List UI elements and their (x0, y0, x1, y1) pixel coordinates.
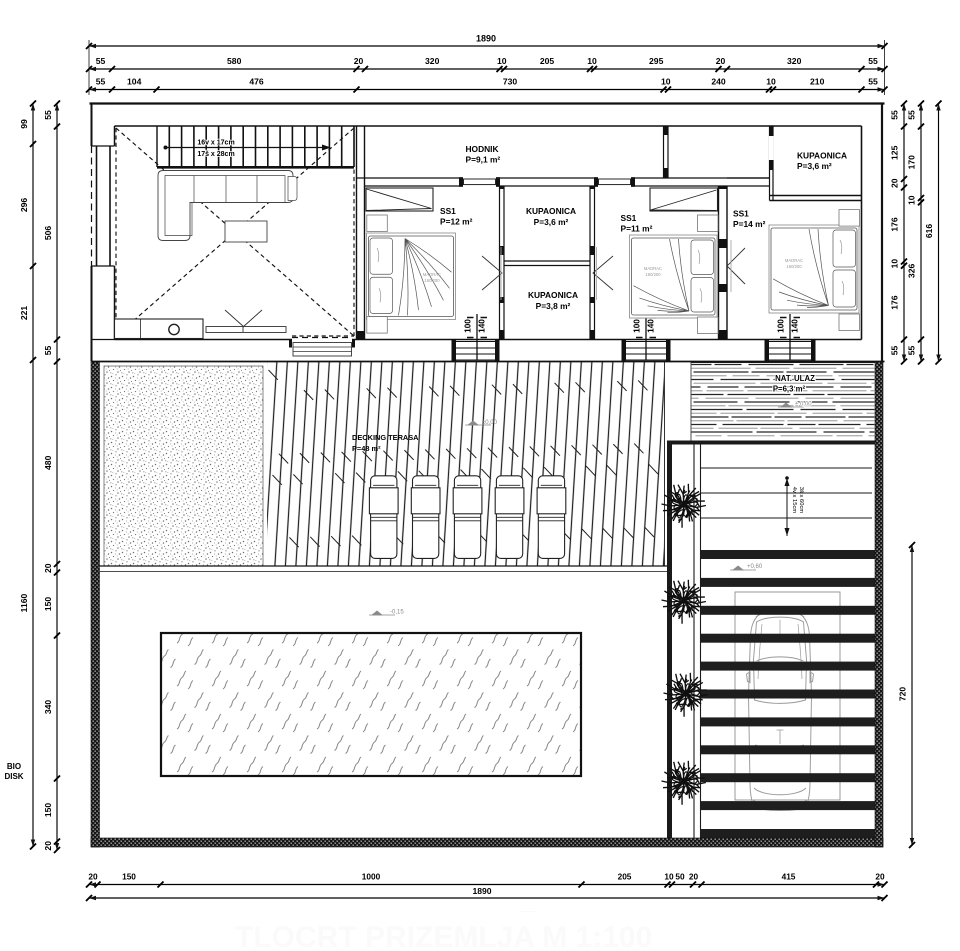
svg-text:10: 10 (907, 195, 917, 205)
svg-text:10: 10 (766, 77, 776, 87)
svg-text:140: 140 (477, 319, 487, 333)
svg-text:50: 50 (675, 872, 685, 882)
svg-text:55: 55 (890, 110, 900, 120)
svg-text:506: 506 (43, 226, 53, 241)
svg-text:BIO: BIO (7, 762, 21, 771)
svg-text:20: 20 (43, 841, 53, 851)
svg-text:150: 150 (43, 803, 53, 818)
svg-text:10: 10 (661, 77, 671, 87)
svg-text:55: 55 (43, 110, 53, 120)
svg-text:205: 205 (540, 56, 555, 66)
svg-text:1160: 1160 (19, 593, 29, 612)
svg-text:55: 55 (868, 56, 878, 66)
svg-text:1890: 1890 (472, 886, 491, 896)
svg-text:125: 125 (890, 145, 900, 160)
svg-text:221: 221 (19, 306, 29, 321)
svg-text:170: 170 (907, 155, 917, 170)
svg-text:17š x 28cm: 17š x 28cm (197, 151, 234, 158)
svg-text:1000: 1000 (362, 872, 381, 882)
svg-text:___: ___ (519, 902, 536, 912)
svg-text:730: 730 (503, 77, 518, 87)
svg-text:P=9,1 m²: P=9,1 m² (466, 155, 501, 165)
svg-text:99: 99 (19, 119, 29, 129)
svg-text:P=3,6 m²: P=3,6 m² (797, 161, 832, 171)
svg-text:150: 150 (122, 872, 136, 882)
svg-text:P=14 m²: P=14 m² (733, 219, 766, 229)
svg-text:10: 10 (587, 56, 597, 66)
svg-text:DISK: DISK (4, 772, 23, 781)
svg-text:MADRAC: MADRAC (785, 258, 803, 263)
svg-text:20: 20 (43, 563, 53, 573)
svg-text:580: 580 (227, 56, 242, 66)
svg-text:P=6,3 m²: P=6,3 m² (773, 385, 806, 394)
svg-text:55: 55 (96, 77, 106, 87)
svg-text:100: 100 (776, 319, 786, 333)
svg-text:1890: 1890 (476, 34, 496, 44)
svg-text:104: 104 (127, 77, 142, 87)
svg-text:SS1: SS1 (621, 213, 637, 223)
svg-text:55: 55 (890, 346, 900, 356)
svg-text:55: 55 (43, 346, 53, 356)
svg-text:+0,60: +0,60 (747, 564, 763, 570)
svg-text:415: 415 (782, 872, 796, 882)
svg-text:3š x 60cm: 3š x 60cm (798, 487, 804, 514)
svg-text:± 0,00: ± 0,00 (795, 402, 812, 408)
svg-text:-0,15: -0,15 (390, 610, 404, 616)
svg-text:SS1: SS1 (440, 206, 456, 216)
svg-text:140: 140 (790, 319, 800, 333)
svg-text:20: 20 (689, 872, 699, 882)
svg-text:296: 296 (19, 198, 29, 213)
svg-text:55: 55 (96, 56, 106, 66)
svg-text:16v x 17cm: 16v x 17cm (197, 140, 234, 147)
svg-text:SS1: SS1 (733, 209, 749, 219)
svg-text:MADRAC: MADRAC (423, 272, 441, 277)
svg-text:10: 10 (497, 56, 507, 66)
svg-text:10: 10 (890, 259, 900, 269)
svg-text:176: 176 (890, 217, 900, 232)
svg-text:340: 340 (43, 700, 53, 715)
svg-text:KUPAONICA: KUPAONICA (797, 151, 847, 161)
svg-text:TLOCRT PRIZEMLJA M 1:100: TLOCRT PRIZEMLJA M 1:100 (235, 921, 652, 951)
svg-text:P=48 m²: P=48 m² (352, 444, 381, 453)
svg-text:476: 476 (249, 77, 264, 87)
svg-text:±0,00: ±0,00 (482, 420, 498, 426)
svg-text:240: 240 (711, 77, 726, 87)
svg-text:HODNIK: HODNIK (466, 144, 499, 154)
svg-text:295: 295 (649, 56, 664, 66)
svg-text:55: 55 (868, 77, 878, 87)
svg-text:KUPAONICA: KUPAONICA (528, 290, 578, 300)
svg-text:160/200: 160/200 (786, 264, 802, 269)
svg-text:205: 205 (618, 872, 632, 882)
svg-text:4v x 15cm: 4v x 15cm (791, 487, 797, 514)
svg-text:480: 480 (43, 455, 53, 470)
svg-text:DECKING TERASA: DECKING TERASA (352, 433, 419, 442)
svg-text:320: 320 (787, 56, 802, 66)
svg-text:55: 55 (907, 110, 917, 120)
svg-text:100: 100 (463, 319, 473, 333)
svg-text:160/200: 160/200 (424, 278, 440, 283)
svg-text:P=12 m²: P=12 m² (440, 217, 473, 227)
svg-text:P=3,6 m²: P=3,6 m² (534, 217, 569, 227)
svg-text:100: 100 (632, 319, 642, 333)
svg-text:NAT. ULAZ: NAT. ULAZ (775, 374, 815, 383)
svg-text:140: 140 (646, 319, 656, 333)
svg-text:20: 20 (88, 872, 98, 882)
svg-text:MADRAC: MADRAC (644, 266, 662, 271)
svg-text:20: 20 (716, 56, 726, 66)
svg-text:20: 20 (354, 56, 364, 66)
svg-text:326: 326 (907, 264, 917, 279)
svg-text:KUPAONICA: KUPAONICA (526, 206, 576, 216)
svg-text:55: 55 (907, 346, 917, 356)
svg-text:10: 10 (664, 872, 674, 882)
svg-text:720: 720 (898, 687, 908, 702)
svg-text:616: 616 (924, 224, 934, 239)
svg-text:P=11 m²: P=11 m² (621, 224, 653, 234)
svg-text:20: 20 (875, 872, 885, 882)
svg-text:176: 176 (890, 295, 900, 310)
svg-text:150: 150 (43, 597, 53, 612)
svg-text:210: 210 (810, 77, 825, 87)
svg-text:20: 20 (890, 178, 900, 188)
svg-text:160/200: 160/200 (645, 272, 661, 277)
svg-text:P=3,8 m²: P=3,8 m² (536, 301, 571, 311)
svg-text:320: 320 (425, 56, 440, 66)
